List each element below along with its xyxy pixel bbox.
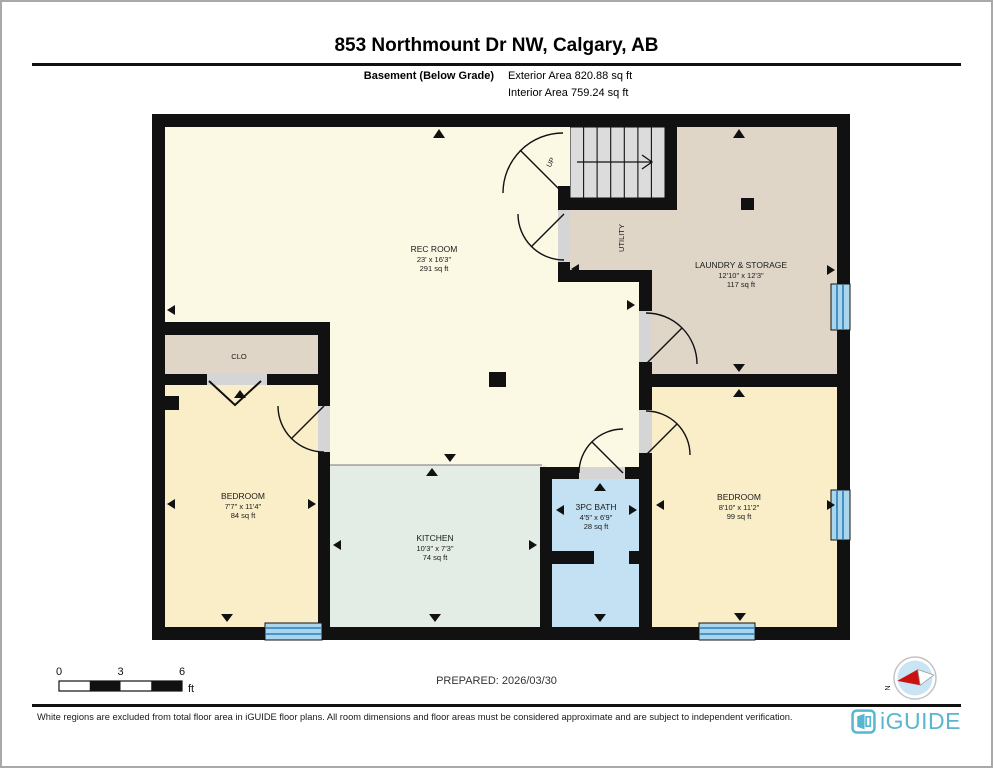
label-bath-area: 28 sq ft xyxy=(584,522,610,531)
label-bedl-area: 84 sq ft xyxy=(231,511,257,520)
label-bath-name: 3PC BATH xyxy=(576,502,617,512)
label-clo: CLO xyxy=(231,352,247,361)
label-utility: UTILITY xyxy=(617,224,626,252)
label-rec-dims: 23' x 16'3" xyxy=(417,255,452,264)
label-bedr-dims: 8'10" x 11'2" xyxy=(719,503,760,512)
floor-plan-svg: REC ROOM 23' x 16'3" 291 sq ft LAUNDRY &… xyxy=(2,2,993,768)
label-rec-area: 291 sq ft xyxy=(420,264,450,273)
floor-plan-page: 853 Northmount Dr NW, Calgary, AB Baseme… xyxy=(0,0,993,768)
disclaimer-text: White regions are excluded from total fl… xyxy=(37,712,793,722)
label-laundry-name: LAUNDRY & STORAGE xyxy=(695,260,787,270)
label-bath-dims: 4'5" x 6'9" xyxy=(580,513,613,522)
label-kitchen-name: KITCHEN xyxy=(416,533,453,543)
label-rec-name: REC ROOM xyxy=(411,244,458,254)
window-bedroom-left-bottom xyxy=(265,623,322,640)
label-kitchen-area: 74 sq ft xyxy=(423,553,449,562)
post-laundry xyxy=(741,198,754,210)
stairs xyxy=(570,127,665,198)
label-bedr-name: BEDROOM xyxy=(717,492,761,502)
label-laundry-dims: 12'10" x 12'3" xyxy=(718,271,764,280)
window-bedroom-right-bottom xyxy=(699,623,755,640)
label-kitchen-dims: 10'3" x 7'3" xyxy=(417,544,454,553)
prepared-date: PREPARED: 2026/03/30 xyxy=(2,675,991,687)
label-bedl-name: BEDROOM xyxy=(221,491,265,501)
window-laundry xyxy=(831,284,850,330)
label-bedr-area: 99 sq ft xyxy=(727,512,753,521)
post-rec-room xyxy=(489,372,506,387)
label-laundry-area: 117 sq ft xyxy=(727,280,756,289)
label-bedl-dims: 7'7" x 11'4" xyxy=(225,502,262,511)
window-bedroom-right-side xyxy=(831,490,850,540)
iguide-logo-text: iGUIDE xyxy=(880,708,961,735)
footer-divider xyxy=(32,704,961,707)
iguide-logo-icon xyxy=(851,709,876,734)
iguide-logo: iGUIDE xyxy=(851,708,961,735)
